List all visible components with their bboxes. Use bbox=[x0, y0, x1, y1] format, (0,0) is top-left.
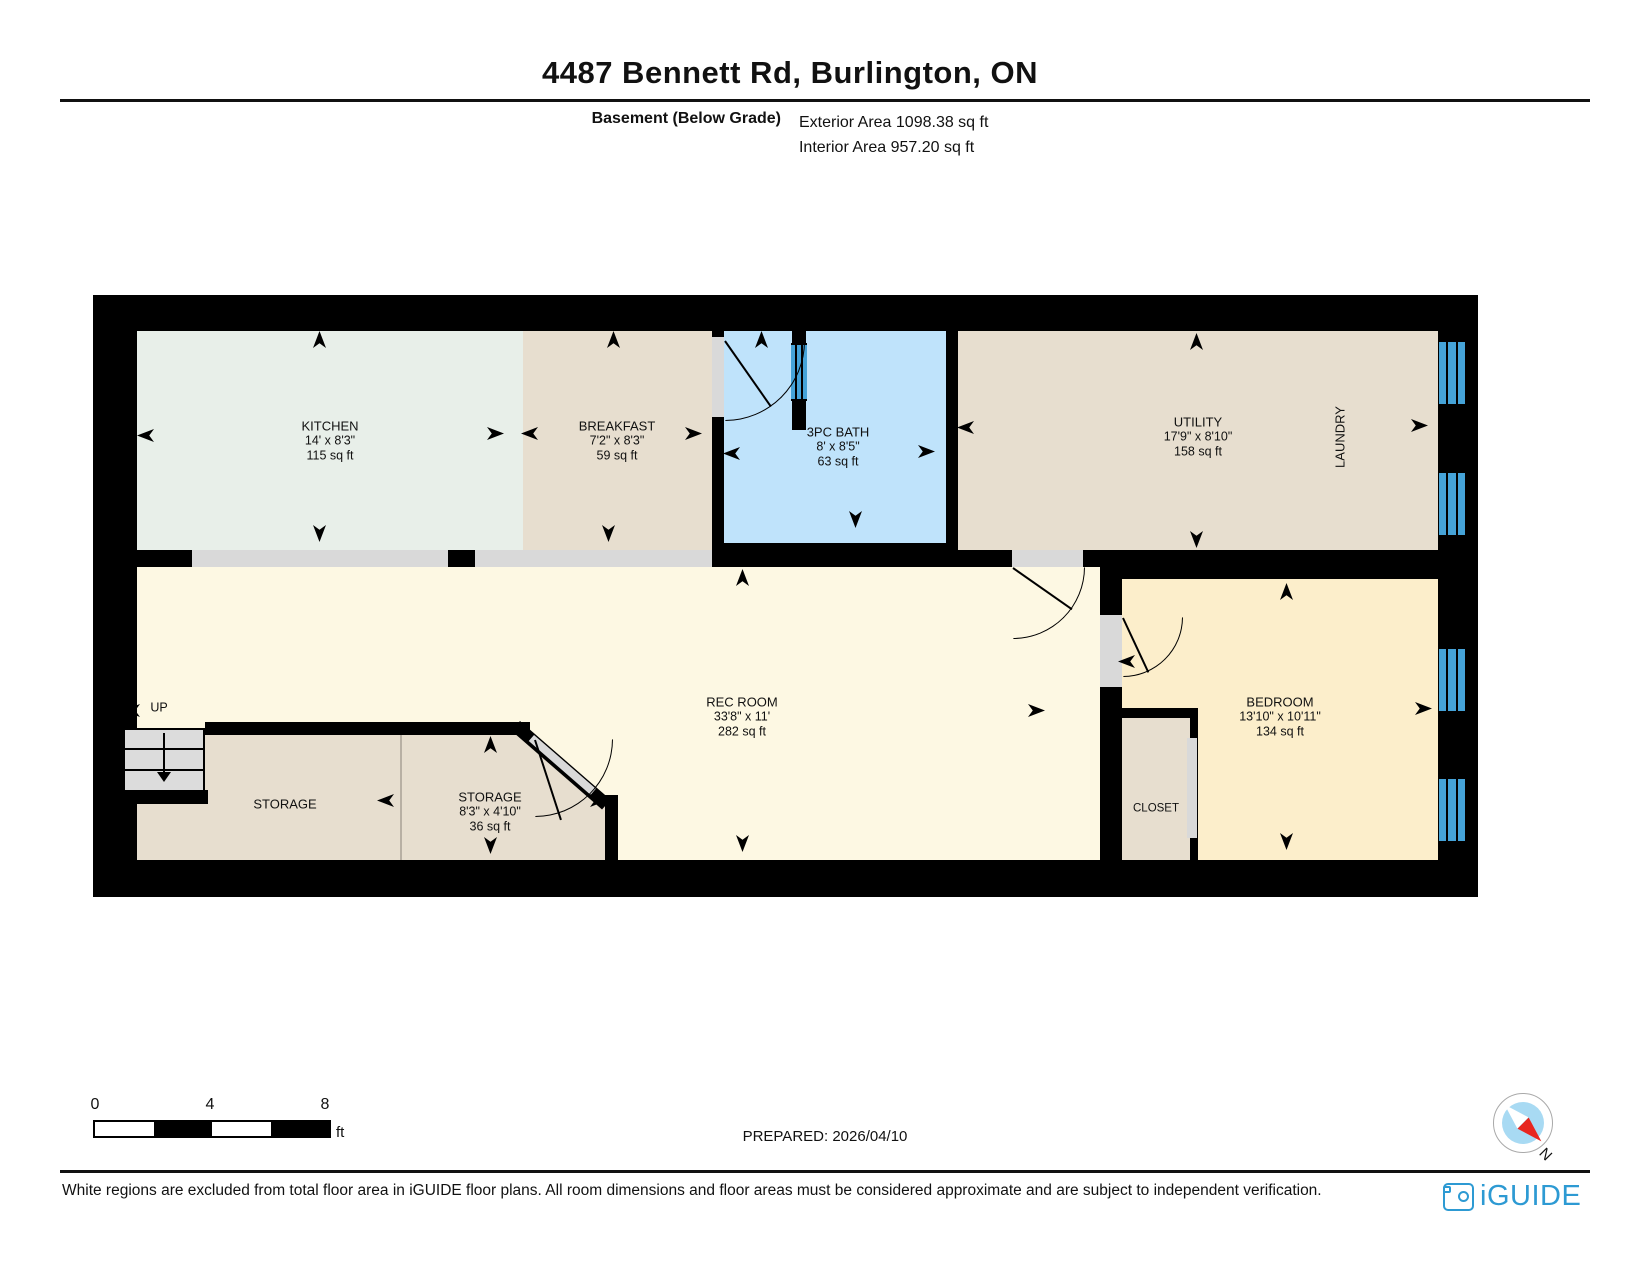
kitchen-dims: 14' x 8'3" bbox=[301, 434, 358, 449]
knee-wall-right bbox=[475, 550, 712, 567]
compass-icon bbox=[1493, 1093, 1553, 1153]
bath-dims: 8' x 8'5" bbox=[807, 440, 870, 455]
bedroom-dims: 13'10" x 10'11" bbox=[1239, 710, 1321, 725]
rec-room-name: REC ROOM bbox=[706, 695, 778, 710]
storage-under-stairs bbox=[137, 802, 205, 860]
rec-room-label: REC ROOM 33'8" x 11' 282 sq ft bbox=[706, 695, 778, 740]
footer-divider bbox=[60, 1170, 1590, 1173]
header-divider bbox=[60, 99, 1590, 102]
closet-label: CLOSET bbox=[1133, 802, 1179, 817]
floor-label: Basement (Below Grade) bbox=[592, 110, 781, 128]
storage-top-wall bbox=[205, 722, 530, 735]
interior-area: Interior Area 957.20 sq ft bbox=[799, 135, 988, 160]
bedroom-label: BEDROOM 13'10" x 10'11" 134 sq ft bbox=[1239, 695, 1321, 740]
exterior-area: Exterior Area 1098.38 sq ft bbox=[799, 110, 988, 135]
kitchen-label: KITCHEN 14' x 8'3" 115 sq ft bbox=[301, 419, 358, 464]
rec-room-area: 282 sq ft bbox=[706, 725, 778, 740]
iguide-logo: iGUIDE bbox=[1443, 1180, 1581, 1213]
closet-top-wall bbox=[1122, 708, 1198, 718]
staircase bbox=[123, 728, 205, 792]
bath-area: 63 sq ft bbox=[807, 455, 870, 470]
breakfast-area: 59 sq ft bbox=[579, 449, 656, 464]
storage-divider-line bbox=[400, 735, 402, 860]
utility-name: UTILITY bbox=[1164, 415, 1233, 430]
laundry-label: LAUNDRY bbox=[1333, 406, 1348, 468]
kitchen-area: 115 sq ft bbox=[301, 449, 358, 464]
utility-window-2 bbox=[1439, 471, 1465, 537]
storage-name: STORAGE bbox=[253, 797, 316, 812]
knee-wall-left bbox=[192, 550, 448, 567]
stair-direction-line bbox=[163, 733, 165, 773]
stair-base-wall bbox=[120, 790, 208, 804]
bedroom-window-1 bbox=[1439, 647, 1465, 713]
area-summary: Exterior Area 1098.38 sq ft Interior Are… bbox=[799, 110, 988, 160]
breakfast-dims: 7'2" x 8'3" bbox=[579, 434, 656, 449]
floor-summary: Basement (Below Grade) Exterior Area 109… bbox=[0, 110, 1580, 160]
bath-label: 3PC BATH 8' x 8'5" 63 sq ft bbox=[807, 425, 870, 470]
camera-lens bbox=[1458, 1191, 1469, 1202]
storage2-label: STORAGE 8'3" x 4'10" 36 sq ft bbox=[458, 790, 521, 835]
scale-tick-8: 8 bbox=[321, 1096, 330, 1114]
closet-room bbox=[1122, 718, 1190, 860]
iguide-logo-text: iGUIDE bbox=[1480, 1180, 1581, 1213]
breakfast-name: BREAKFAST bbox=[579, 419, 656, 434]
scale-tick-4: 4 bbox=[206, 1096, 215, 1114]
bath-door-opening bbox=[712, 337, 724, 417]
rec-room-dims: 33'8" x 11' bbox=[706, 710, 778, 725]
breakfast-label: BREAKFAST 7'2" x 8'3" 59 sq ft bbox=[579, 419, 656, 464]
camera-notch bbox=[1443, 1186, 1451, 1193]
bedroom-name: BEDROOM bbox=[1239, 695, 1321, 710]
floor-plan: KITCHEN 14' x 8'3" 115 sq ft BREAKFAST 7… bbox=[93, 295, 1478, 897]
scale-tick-0: 0 bbox=[91, 1096, 100, 1114]
bedroom-window-2 bbox=[1439, 777, 1465, 843]
storage-label: STORAGE bbox=[253, 797, 316, 812]
storage2-dims: 8'3" x 4'10" bbox=[458, 805, 521, 820]
bath-name: 3PC BATH bbox=[807, 425, 870, 440]
utility-dims: 17'9" x 8'10" bbox=[1164, 430, 1233, 445]
storage2-name: STORAGE bbox=[458, 790, 521, 805]
utility-label: UTILITY 17'9" x 8'10" 158 sq ft bbox=[1164, 415, 1233, 460]
iguide-camera-icon bbox=[1443, 1183, 1474, 1211]
footer-disclaimer: White regions are excluded from total fl… bbox=[62, 1182, 1322, 1200]
prepared-date: PREPARED: 2026/04/10 bbox=[0, 1128, 1650, 1145]
closet-door-opening bbox=[1187, 738, 1197, 838]
stairs-up-label: UP bbox=[150, 701, 167, 716]
utility-door-opening bbox=[1012, 550, 1083, 567]
stair-down-arrow-icon bbox=[157, 772, 171, 782]
bedroom-door-opening bbox=[1100, 615, 1122, 687]
page-title: 4487 Bennett Rd, Burlington, ON bbox=[0, 55, 1580, 91]
utility-area: 158 sq ft bbox=[1164, 445, 1233, 460]
storage2-area: 36 sq ft bbox=[458, 820, 521, 835]
storage-right-wall bbox=[605, 795, 618, 860]
utility-window-1 bbox=[1439, 340, 1465, 406]
bedroom-area: 134 sq ft bbox=[1239, 725, 1321, 740]
kitchen-name: KITCHEN bbox=[301, 419, 358, 434]
